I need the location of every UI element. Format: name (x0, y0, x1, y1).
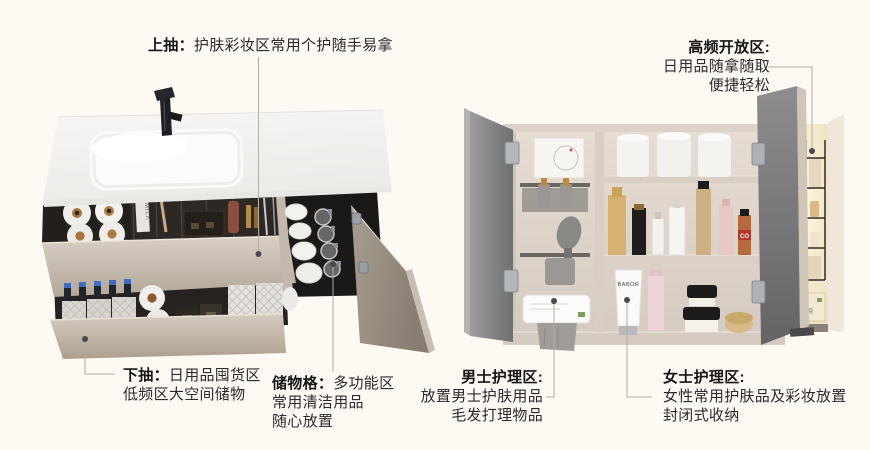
annotation-womens-care: 女士护理区: 女性常用护肤品及彩妆放置 封闭式收纳 (663, 368, 847, 425)
cabinet-divider (595, 132, 604, 332)
vanity-cabinet-illustration: MILK (30, 85, 440, 365)
annotation-text: 低频区大空间储物 (123, 385, 261, 404)
annotation-text: 封闭式收纳 (663, 406, 847, 425)
annotation-title: 上抽： (148, 37, 194, 54)
white-canisters (617, 132, 731, 177)
annotation-text: 常用清洁用品 (272, 393, 394, 412)
annotation-text: 放置男士护肤用品 (421, 387, 543, 406)
tube-brand-text: BABOR (618, 282, 640, 288)
canister-label-text: CO (740, 234, 749, 240)
annotation-mens-care: 男士护理区: 放置男士护肤用品 毛发打理物品 (421, 368, 543, 425)
annotation-text: 日用品随拿随取 (663, 57, 770, 76)
bottom-drawer-front (50, 314, 286, 359)
annotation-text: 日用品囤货区 (169, 367, 261, 384)
annotation-text: 女性常用护肤品及彩妆放置 (663, 387, 847, 406)
annotation-storage-grid: 储物格：多功能区 常用清洁用品 随心放置 (272, 374, 394, 431)
annotation-high-frequency: 高频开放区: 日用品随拿随取 便捷轻松 (663, 38, 770, 95)
mirror-door-right (752, 86, 814, 345)
annotation-top-drawer: 上抽：护肤彩妆区常用个护随手易拿 (148, 36, 393, 55)
infographic-canvas: MILK (0, 0, 870, 450)
annotation-title: 高频开放区: (663, 38, 770, 57)
annotation-text: 多功能区 (333, 375, 394, 392)
annotation-title: 男士护理区: (421, 368, 543, 387)
mirror-door-left (464, 108, 519, 342)
vanity-side-door (351, 205, 435, 353)
annotation-bottom-drawer: 下抽：日用品囤货区 低频区大空间储物 (123, 366, 261, 404)
vanity-sink (89, 128, 243, 191)
milk-carton-text: MILK (143, 203, 150, 221)
annotation-text: 便捷轻松 (663, 76, 770, 95)
annotation-title: 女士护理区: (663, 368, 847, 387)
annotation-text: 毛发打理物品 (421, 406, 543, 425)
mirror-cabinet-illustration: 800g (460, 80, 850, 355)
hanging-towel (537, 323, 577, 351)
annotation-title: 储物格： (272, 375, 333, 392)
annotation-text: 护肤彩妆区常用个护随手易拿 (194, 37, 393, 54)
annotation-text: 随心放置 (272, 412, 394, 431)
annotation-title: 下抽： (123, 367, 169, 384)
